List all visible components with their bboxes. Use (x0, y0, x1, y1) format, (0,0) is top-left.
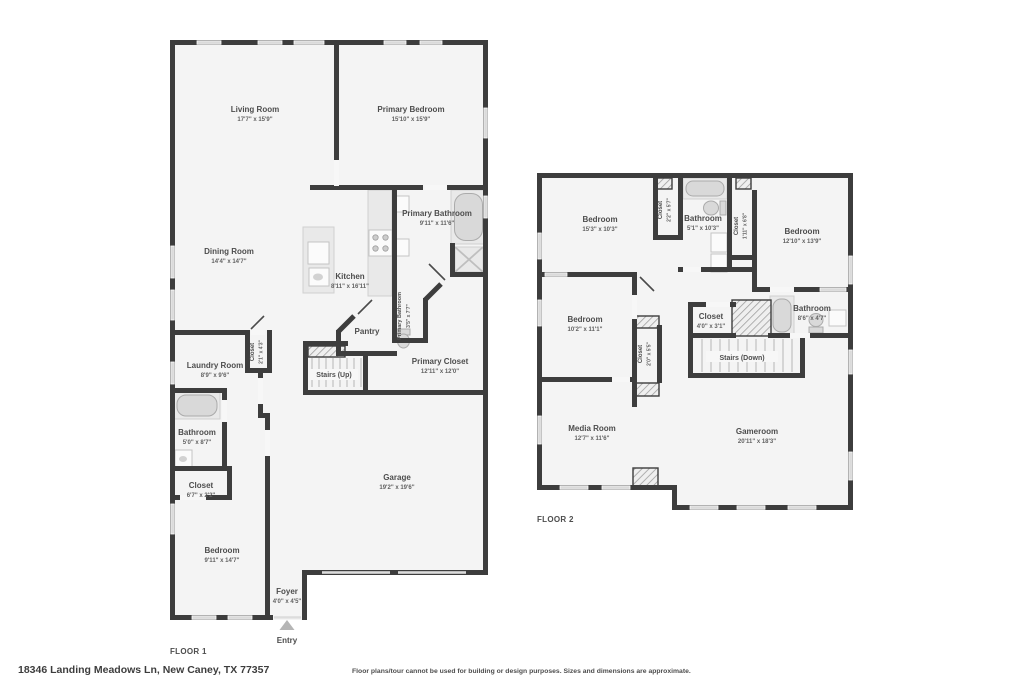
room-label-media-room: Media Room (568, 424, 616, 433)
toilet-tank-icon (720, 201, 726, 215)
garage-door-icon (398, 571, 466, 574)
room-label-hall-closet: Closet (250, 343, 256, 361)
room-label-primary-closet: Primary Closet (412, 357, 469, 366)
room-label-closet-b: Closet (734, 217, 740, 235)
garage-door-icon (322, 571, 390, 574)
room-dims-primary-closet: 12'11" x 12'0" (421, 369, 459, 375)
address-text: 18346 Landing Meadows Ln, New Caney, TX … (18, 664, 269, 676)
room-label-stairs-down: Stairs (Down) (719, 355, 764, 362)
room-dims-hall-closet: 2'1" x 4'3" (259, 339, 265, 363)
room-dims-laundry: 8'9" x 9'6" (201, 373, 230, 379)
floor2-plan: Bedroom 15'3" x 10'3" Closet 2'2" x 5'7"… (537, 173, 853, 524)
room-label-closet-c: Closet (638, 345, 644, 363)
room-label-closet-a: Closet (658, 201, 664, 219)
floorplan-page: Living Room 17'7" x 15'9" Primary Bedroo… (0, 0, 1024, 683)
room-label-bedroom-a: Bedroom (582, 215, 617, 224)
kitchen-sink-basin-icon (313, 274, 323, 281)
room-dims-living: 17'7" x 15'9" (237, 117, 272, 123)
room-label-living: Living Room (231, 105, 279, 114)
room-dims-bathroom-a: 5'1" x 10'3" (687, 226, 719, 232)
room-label-foyer: Foyer (276, 587, 298, 596)
room-dims-bedroom-a: 15'3" x 10'3" (582, 227, 617, 233)
room-dims-media-room: 12'7" x 11'6" (575, 436, 610, 442)
room-label-primary-bedroom: Primary Bedroom (377, 105, 444, 114)
room-dims-closet-b: 1'11" x 6'8" (743, 212, 749, 239)
floor1-plan: Living Room 17'7" x 15'9" Primary Bedroo… (170, 40, 488, 656)
bathroom-sink-icon (711, 233, 727, 252)
page-background (0, 0, 1024, 683)
room-label-bedroom-c: Bedroom (567, 315, 602, 324)
stove-icon (369, 230, 392, 256)
room-dims-closet-c: 2'0" x 5'5" (647, 341, 653, 365)
room-dims-water-closet: 3'5" x 7'7" (406, 303, 412, 327)
room-dims-closet-a: 2'2" x 5'7" (667, 197, 673, 221)
room-dims-bedroom-b: 12'10" x 13'9" (783, 239, 822, 245)
room-dims-bedroom-c: 10'2" x 11'1" (568, 327, 603, 333)
burner-icon (373, 246, 378, 251)
bathtub-icon (773, 299, 791, 332)
fridge-icon (308, 242, 329, 264)
entry-label: Entry (277, 636, 298, 645)
room-label-bathroom-b: Bathroom (793, 304, 831, 313)
bathtub-icon (686, 181, 724, 196)
burner-icon (373, 235, 378, 240)
room-dims-bathroom-b: 8'6" x 4'7" (798, 316, 827, 322)
room-label-garage: Garage (383, 473, 411, 482)
room-dims-bedroom-closet: 6'7" x 2'2" (187, 493, 216, 499)
burner-icon (383, 235, 388, 240)
room-label-closet-d: Closet (699, 312, 724, 321)
room-dims-foyer: 4'0" x 4'5" (273, 599, 302, 605)
room-label-laundry: Laundry Room (187, 361, 243, 370)
floor2-title: FLOOR 2 (537, 515, 574, 524)
sink-basin-icon (179, 456, 187, 462)
room-label-dining: Dining Room (204, 247, 254, 256)
room-dims-garage: 19'2" x 19'6" (379, 485, 414, 491)
room-dims-kitchen: 8'11" x 16'11" (331, 284, 369, 290)
room-dims-gameroom: 20'11" x 18'3" (738, 439, 776, 445)
room-label-gameroom: Gameroom (736, 427, 778, 436)
room-label-bathroom: Bathroom (178, 428, 216, 437)
toilet-tank-icon (809, 327, 823, 333)
room-label-stairs-up: Stairs (Up) (316, 372, 351, 379)
entry-threshold (274, 616, 301, 618)
room-dims-primary-bathroom: 9'11" x 11'6" (420, 221, 455, 227)
room-label-bedroom: Bedroom (204, 546, 239, 555)
room-label-pantry: Pantry (355, 327, 380, 336)
room-label-bedroom-b: Bedroom (784, 227, 819, 236)
room-dims-primary-bedroom: 15'10" x 15'9" (392, 117, 431, 123)
room-dims-closet-d: 4'0" x 3'1" (697, 324, 726, 330)
room-dims-dining: 14'4" x 14'7" (211, 259, 246, 265)
room-dims-bedroom: 9'11" x 14'7" (205, 558, 240, 564)
toilet-icon (704, 201, 719, 215)
room-dims-bathroom: 5'0" x 8'7" (183, 440, 212, 446)
room-label-kitchen: Kitchen (335, 272, 364, 281)
bathtub-icon (177, 395, 217, 416)
room-label-bedroom-closet: Closet (189, 481, 214, 490)
bathroom-sink-icon (829, 310, 846, 326)
room-label-bathroom-a: Bathroom (684, 214, 722, 223)
room-label-primary-bathroom: Primary Bathroom (402, 209, 472, 218)
burner-icon (383, 246, 388, 251)
disclaimer-text: Floor plans/tour cannot be used for buil… (352, 668, 691, 675)
floorplan-canvas: Living Room 17'7" x 15'9" Primary Bedroo… (0, 0, 1024, 683)
room-label-water-closet: Primary Bathroom (397, 292, 403, 340)
floor1-title: FLOOR 1 (170, 647, 207, 656)
